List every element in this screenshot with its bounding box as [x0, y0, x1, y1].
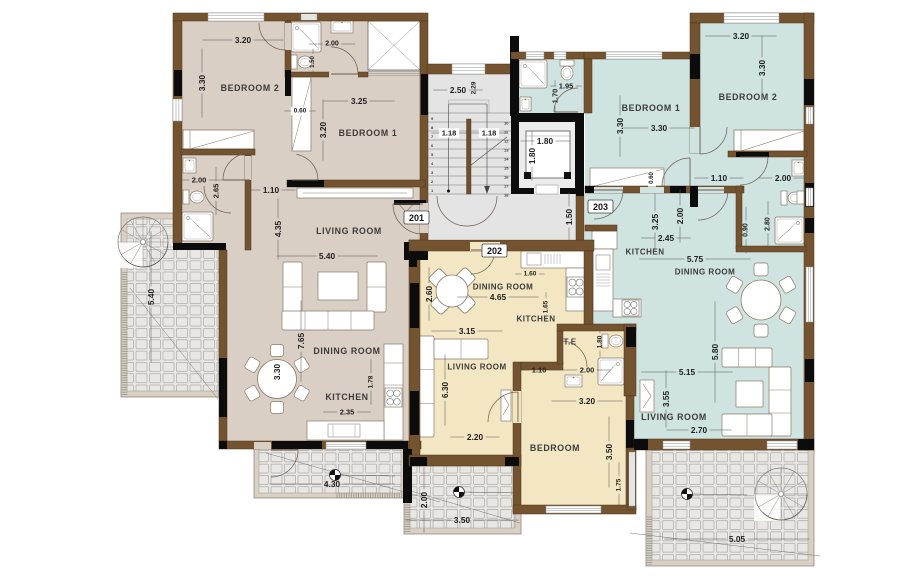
svg-text:BEDROOM 2: BEDROOM 2	[221, 83, 280, 93]
svg-text:2.00: 2.00	[419, 492, 429, 509]
svg-text:LIVING ROOM: LIVING ROOM	[316, 226, 382, 236]
svg-text:4.35: 4.35	[273, 221, 283, 238]
svg-text:BEDROOM 1: BEDROOM 1	[339, 128, 398, 138]
svg-text:T.E: T.E	[563, 338, 576, 347]
svg-text:2.29: 2.29	[471, 81, 478, 94]
svg-text:4.30: 4.30	[324, 479, 341, 489]
svg-text:2.00: 2.00	[192, 176, 207, 185]
svg-text:3.55: 3.55	[661, 391, 671, 408]
svg-text:3.30: 3.30	[757, 60, 767, 77]
svg-text:3.30: 3.30	[651, 123, 668, 133]
svg-text:1.60: 1.60	[524, 271, 537, 278]
svg-text:12: 12	[504, 139, 509, 144]
svg-text:201: 201	[409, 213, 424, 223]
svg-text:1.18: 1.18	[482, 129, 497, 138]
svg-text:2.00: 2.00	[580, 366, 595, 375]
svg-text:2.20: 2.20	[467, 432, 484, 442]
svg-text:10: 10	[504, 121, 509, 126]
svg-text:203: 203	[593, 202, 608, 212]
svg-text:2.80: 2.80	[765, 217, 772, 231]
svg-text:3.20: 3.20	[235, 35, 252, 45]
svg-text:1.65: 1.65	[543, 300, 550, 313]
svg-text:DINING ROOM: DINING ROOM	[313, 346, 380, 356]
svg-text:18: 18	[504, 193, 509, 198]
svg-text:7.65: 7.65	[296, 333, 306, 350]
svg-text:1.80: 1.80	[537, 136, 554, 146]
svg-text:3.25: 3.25	[351, 96, 368, 106]
svg-text:1.10: 1.10	[532, 366, 547, 375]
svg-text:3.25: 3.25	[650, 214, 660, 231]
svg-text:5.05: 5.05	[729, 534, 746, 544]
svg-text:1.80: 1.80	[597, 335, 604, 348]
svg-text:5.15: 5.15	[679, 367, 696, 377]
svg-text:3.50: 3.50	[604, 444, 614, 461]
svg-text:3.20: 3.20	[318, 122, 328, 139]
svg-text:3.15: 3.15	[459, 326, 476, 336]
svg-text:1.95: 1.95	[559, 82, 574, 91]
svg-text:3.50: 3.50	[454, 515, 471, 525]
svg-text:2.45: 2.45	[658, 233, 675, 243]
svg-text:3.30: 3.30	[272, 364, 282, 381]
svg-text:2.50: 2.50	[450, 85, 467, 95]
svg-text:1.78: 1.78	[368, 375, 375, 388]
svg-text:0.60: 0.60	[294, 108, 307, 115]
svg-text:0.60: 0.60	[649, 172, 655, 184]
svg-text:1.70: 1.70	[551, 89, 560, 104]
svg-text:2.00: 2.00	[775, 173, 792, 183]
svg-text:17: 17	[504, 184, 509, 189]
svg-text:14: 14	[504, 157, 509, 162]
svg-text:202: 202	[487, 246, 502, 256]
svg-text:DINING ROOM: DINING ROOM	[473, 283, 534, 292]
svg-text:1.50: 1.50	[310, 56, 316, 68]
svg-text:KITCHEN: KITCHEN	[516, 315, 555, 324]
svg-text:LIVING ROOM: LIVING ROOM	[641, 412, 707, 422]
svg-text:5.40: 5.40	[319, 251, 336, 261]
svg-text:3.30: 3.30	[197, 75, 207, 92]
svg-text:2.70: 2.70	[691, 425, 708, 435]
svg-text:6.30: 6.30	[440, 382, 450, 399]
svg-text:2.00: 2.00	[675, 208, 685, 225]
svg-text:4.65: 4.65	[490, 292, 507, 302]
svg-text:3.20: 3.20	[733, 31, 750, 41]
svg-text:2.35: 2.35	[340, 408, 355, 417]
svg-text:0.90: 0.90	[743, 223, 750, 237]
svg-text:1.10: 1.10	[711, 173, 728, 183]
svg-text:2.00: 2.00	[325, 41, 339, 48]
svg-text:2.60: 2.60	[424, 286, 434, 303]
svg-text:1.50: 1.50	[564, 209, 574, 226]
svg-text:5.80: 5.80	[710, 344, 720, 361]
svg-text:15: 15	[504, 166, 509, 171]
svg-text:1.10: 1.10	[263, 185, 280, 195]
svg-text:1.18: 1.18	[442, 129, 457, 138]
svg-text:5.75: 5.75	[687, 254, 704, 264]
svg-text:1.75: 1.75	[616, 478, 623, 491]
svg-text:BEDROOM 1: BEDROOM 1	[622, 103, 681, 113]
svg-text:13: 13	[504, 148, 509, 153]
svg-text:KITCHEN: KITCHEN	[625, 248, 664, 257]
svg-text:5.40: 5.40	[146, 289, 156, 306]
svg-text:1.80: 1.80	[527, 148, 537, 165]
svg-text:BEDROOM 2: BEDROOM 2	[719, 92, 778, 102]
svg-text:16: 16	[504, 175, 509, 180]
svg-text:2.65: 2.65	[212, 184, 221, 199]
svg-text:LIVING ROOM: LIVING ROOM	[447, 363, 506, 372]
svg-text:3.20: 3.20	[579, 396, 596, 406]
svg-text:DINING ROOM: DINING ROOM	[675, 268, 736, 277]
svg-text:KITCHEN: KITCHEN	[325, 392, 368, 402]
svg-text:3.30: 3.30	[615, 118, 625, 135]
svg-text:BEDROOM: BEDROOM	[530, 443, 580, 453]
